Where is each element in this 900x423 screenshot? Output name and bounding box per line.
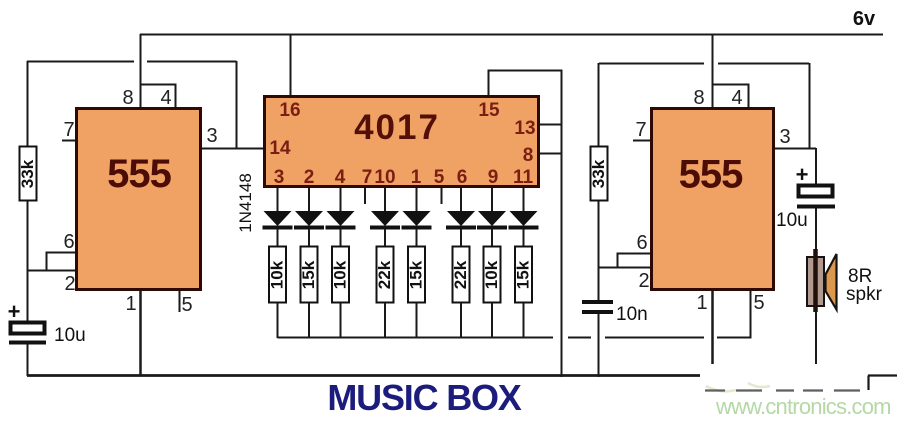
svg-text:4017: 4017 — [354, 108, 440, 147]
svg-text:10: 10 — [374, 167, 395, 188]
svg-text:10k: 10k — [482, 260, 501, 289]
svg-text:7: 7 — [362, 167, 373, 188]
svg-text:33k: 33k — [589, 159, 608, 188]
svg-text:10u: 10u — [776, 210, 808, 231]
svg-text:555: 555 — [107, 152, 171, 196]
svg-text:10k: 10k — [268, 260, 287, 289]
svg-text:6: 6 — [63, 231, 74, 253]
svg-text:5: 5 — [181, 294, 192, 316]
svg-text:13: 13 — [514, 118, 535, 139]
svg-text:www.cntronics.com: www.cntronics.com — [715, 394, 891, 419]
svg-text:+: + — [796, 162, 809, 187]
svg-text:4: 4 — [335, 167, 346, 188]
svg-text:4: 4 — [731, 87, 742, 109]
svg-text:6: 6 — [457, 167, 468, 188]
svg-text:3: 3 — [274, 167, 285, 188]
svg-text:1: 1 — [411, 167, 422, 188]
svg-text:2: 2 — [304, 167, 315, 188]
svg-text:7: 7 — [635, 119, 646, 141]
svg-text:11: 11 — [513, 167, 534, 188]
svg-text:15k: 15k — [299, 260, 318, 289]
svg-text:5: 5 — [434, 167, 445, 188]
svg-text:15k: 15k — [514, 260, 533, 289]
svg-text:9: 9 — [488, 167, 499, 188]
svg-text:15k: 15k — [407, 260, 426, 289]
svg-text:5: 5 — [753, 292, 764, 314]
svg-text:4: 4 — [160, 87, 171, 109]
svg-text:15: 15 — [478, 100, 500, 121]
svg-text:8: 8 — [693, 87, 704, 109]
svg-text:22k: 22k — [451, 260, 470, 289]
svg-text:8: 8 — [122, 87, 133, 109]
svg-text:7: 7 — [63, 119, 74, 141]
svg-text:22k: 22k — [375, 260, 394, 289]
svg-text:6: 6 — [636, 232, 647, 254]
svg-text:555: 555 — [679, 153, 743, 197]
svg-text:14: 14 — [269, 138, 291, 159]
svg-text:10n: 10n — [616, 304, 648, 325]
svg-text:33k: 33k — [18, 159, 37, 188]
svg-text:6v: 6v — [853, 8, 876, 30]
svg-text:MUSIC BOX: MUSIC BOX — [327, 377, 521, 418]
svg-text:10k: 10k — [331, 260, 350, 289]
svg-text:2: 2 — [64, 273, 75, 295]
svg-text:2: 2 — [638, 270, 649, 292]
svg-text:10u: 10u — [54, 325, 86, 346]
svg-text:3: 3 — [206, 125, 217, 147]
svg-text:8: 8 — [523, 145, 534, 166]
svg-text:1N4148: 1N4148 — [236, 173, 255, 233]
svg-text:spkr: spkr — [846, 284, 883, 305]
svg-text:16: 16 — [279, 100, 300, 121]
svg-text:3: 3 — [779, 126, 790, 148]
svg-text:1: 1 — [125, 293, 136, 315]
svg-text:1: 1 — [696, 292, 707, 314]
svg-text:+: + — [8, 299, 21, 324]
